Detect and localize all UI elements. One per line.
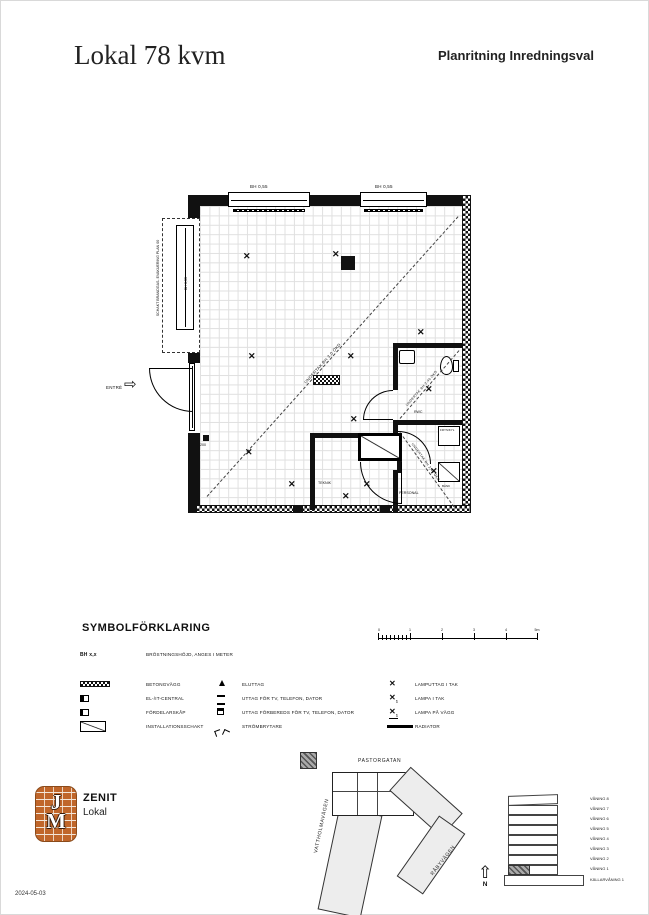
lamp-symbol: ✕ — [417, 328, 425, 337]
north-arrow-icon: ⇧ — [478, 864, 492, 881]
page-title: Lokal 78 kvm — [74, 40, 225, 71]
radiator-2 — [364, 209, 423, 212]
window-left-sill-height: BH 0,55 — [184, 277, 188, 290]
scale-tick-label: 3 — [473, 628, 475, 632]
prepared-outlet-symbol — [217, 708, 224, 715]
window-top-2 — [360, 192, 427, 207]
street-label-left: VATTHOLMAVÄGEN — [313, 798, 330, 853]
floor-label: VÅNING 6 — [590, 816, 609, 821]
lokal-location-marker — [300, 752, 317, 769]
teknik-room-label: TEKNIK — [318, 481, 331, 485]
north-arrow: ⇧ N — [478, 864, 492, 888]
legend-label: LAMPA I TAK — [415, 696, 445, 701]
legend-label: BETONGVÄGG — [146, 682, 181, 687]
installation-shaft-symbol — [80, 721, 106, 732]
electrical-cabinet — [313, 375, 340, 385]
legend-label: EL-/IT-CENTRAL — [146, 696, 184, 701]
legend-bh-symbol: BH x,x — [80, 652, 97, 658]
lamp-symbol: ✕ — [243, 252, 251, 261]
scale-bar-subdivisions — [378, 635, 410, 640]
el-central-note: 200 — [200, 443, 206, 447]
floor-label: VÅNING 4 — [590, 836, 609, 841]
floor-bar — [508, 845, 558, 855]
building-elevation: VÅNING 8 VÅNING 7 VÅNING 6 VÅNING 5 VÅNI… — [500, 783, 648, 895]
radiator-symbol — [387, 725, 413, 728]
scale-tick-label: 1 — [409, 628, 411, 632]
wall-stub-1 — [293, 505, 303, 513]
scale-tick-label: 0 — [378, 628, 380, 632]
drawing-sheet: { "header": { "title": "Lokal 78 kvm", "… — [0, 0, 649, 915]
rwc-sink — [399, 350, 415, 364]
smoke-shaft-label: SCHAKT BRANDGAS- EVAKUERING PLAN 00 — [156, 218, 161, 338]
floor-bar — [508, 835, 558, 845]
switch-symbol — [214, 729, 222, 737]
scale-bar: 0 1 2 3 4 5m — [378, 628, 538, 646]
rwc-toilet-tank — [453, 360, 459, 372]
legend-label: LAMPA PÅ VÄGG — [415, 710, 455, 715]
floor-bar — [508, 855, 558, 865]
wall-left-lower — [188, 433, 200, 513]
floor-label: VÅNING 7 — [590, 806, 609, 811]
tv-outlet-symbol — [217, 695, 225, 705]
floor-label: VÅNING 2 — [590, 856, 609, 861]
scale-tick-label: 5m — [535, 628, 540, 632]
rwc-room-label: RWC — [414, 410, 423, 414]
installation-shaft — [358, 433, 402, 461]
floor-bar — [508, 825, 558, 835]
el-central — [203, 435, 209, 441]
north-label: N — [478, 881, 492, 888]
entry-door-swing — [149, 368, 193, 412]
legend-label: LAMPUTTAG I TAK — [415, 682, 458, 687]
lamp-symbol: ✕ — [363, 480, 371, 489]
jm-logo: J M — [35, 786, 77, 842]
street-label-top: PASTORGATAN — [358, 758, 401, 764]
floor-bar — [508, 815, 558, 825]
floor-plan: BH 0,55 BH 0,55 SCHAKT BRANDGAS- EVAKUER… — [100, 178, 495, 538]
lamp-symbol: ✕ — [350, 415, 358, 424]
legend-label: INSTALLATIONSSCHAKT — [146, 724, 204, 729]
wall-lamp-symbol: ✕1 — [389, 707, 398, 719]
personal-bench-label: BÄNK — [442, 484, 450, 488]
el-central-symbol — [80, 695, 89, 702]
power-outlet-symbol — [219, 680, 225, 686]
lamp-symbol: ✕ — [347, 352, 355, 361]
floor-label: VÅNING 8 — [590, 796, 609, 801]
ceiling-lamp-symbol: ✕1 — [389, 693, 398, 704]
jm-logo-letter-m: M — [36, 812, 76, 831]
building-east-arm-bottom — [397, 816, 466, 895]
floor-label: VÅNING 1 — [590, 866, 609, 871]
legend-title: SYMBOLFÖRKLARING — [82, 622, 210, 634]
rwc-wall-bottom — [393, 420, 462, 425]
rwc-wall-left-upper — [393, 348, 398, 390]
wall-bottom-concrete — [196, 505, 471, 513]
building-west-body — [318, 807, 383, 915]
legend-label: UTTAG FÖRBEREDS FÖR TV, TELEFON, DATOR — [242, 710, 354, 715]
floor-label: VÅNING 5 — [590, 826, 609, 831]
lokal-floor-marker — [508, 865, 530, 875]
lamp-symbol: ✕ — [332, 250, 340, 259]
rwc-wall-top — [393, 343, 462, 348]
lamp-symbol: ✕ — [342, 492, 350, 501]
distribution-cabinet-symbol — [80, 709, 89, 716]
teknik-wall-top — [310, 433, 360, 438]
legend-label: RADIATOR — [415, 724, 440, 729]
legend-label: UTTAG FÖR TV, TELEFON, DATOR — [242, 696, 322, 701]
window-top-1 — [228, 192, 310, 207]
entrance-arrow-icon: ⇨ — [124, 377, 137, 392]
radiator-1 — [233, 209, 305, 212]
entrance-label: ENTRÉ — [106, 385, 122, 390]
scale-tick-label: 2 — [441, 628, 443, 632]
scale-tick-label: 4 — [505, 628, 507, 632]
concrete-wall-symbol — [80, 681, 110, 687]
switch-symbol — [222, 729, 230, 737]
legend-bh-label: BRÖSTNINGSHÖJD, ANGES I METER — [146, 652, 233, 657]
drawing-date: 2024-05-03 — [15, 891, 46, 897]
lamp-symbol: ✕ — [248, 352, 256, 361]
project-name: ZENIT — [83, 792, 117, 804]
floor-bar-marked — [508, 865, 558, 875]
personal-fridge-label: FRYS/KYL — [440, 428, 454, 432]
legend-label: FÖRDELARSKÅP — [146, 710, 186, 715]
legend-label: ELUTTAG — [242, 682, 264, 687]
lamp-outlet-symbol: ✕ — [389, 679, 396, 688]
teknik-wall-left — [310, 433, 315, 510]
floor-label: KÄLLARVÅNING 1 — [590, 877, 624, 882]
floor-label: VÅNING 3 — [590, 846, 609, 851]
lamp-symbol: ✕ — [430, 467, 438, 476]
unit-type: Lokal — [83, 807, 107, 818]
wall-stub-2 — [380, 505, 390, 513]
legend-label: STRÖMBRYTARE — [242, 724, 282, 729]
lamp-symbol: ✕ — [288, 480, 296, 489]
wall-right-concrete — [462, 195, 471, 513]
cellar-bar — [504, 875, 584, 886]
lamp-symbol: ✕ — [245, 448, 253, 457]
window-2-sill-height: BH 0,55 — [375, 184, 393, 189]
floor-bar — [508, 805, 558, 815]
drawing-type-label: Planritning Inredningsval — [438, 48, 594, 63]
lamp-symbol: ✕ — [425, 385, 433, 394]
ventilation-unit — [341, 256, 355, 270]
site-plan: PASTORGATAN VATTHOLMAVÄGEN RÅBYVÄGEN ⇧ N — [300, 752, 515, 912]
window-1-sill-height: BH 0,55 — [250, 184, 268, 189]
